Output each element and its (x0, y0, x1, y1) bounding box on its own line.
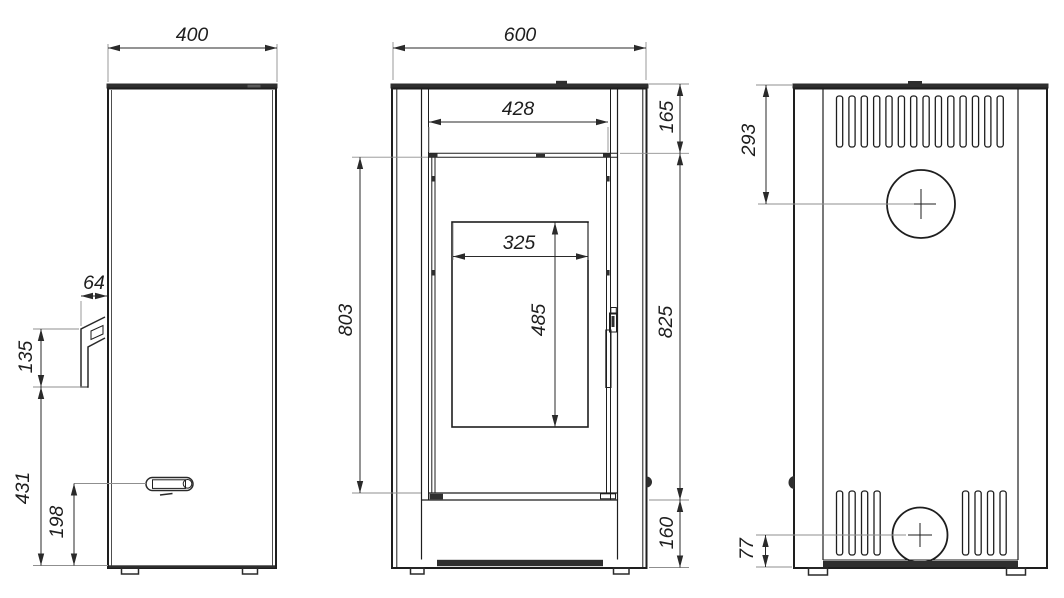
front-latch-mark (612, 316, 615, 327)
vent-slot (898, 96, 904, 147)
vent-slot (874, 96, 880, 147)
vent-slot (849, 96, 855, 147)
vent-slot (861, 96, 867, 147)
dimension-label: 825 (655, 306, 677, 339)
side-body-outline (108, 89, 276, 569)
front-hinge-bottom-left (431, 270, 435, 276)
back-bottom-shadow (823, 561, 1018, 567)
back-top-plate-nub (908, 81, 922, 84)
vent-slot (874, 491, 880, 555)
front-door-bottom-hinge (430, 494, 444, 500)
vent-slot (886, 96, 892, 147)
dimension-label: 803 (335, 304, 357, 337)
back-bottom-vent-grille (837, 491, 1007, 555)
front-dim-glass-width-325: 325 (453, 223, 588, 260)
vent-slot (972, 96, 978, 147)
back-body-outline (794, 89, 1047, 569)
front-latch-pin-bottom (606, 270, 610, 276)
front-top-plate-nub (556, 81, 567, 84)
side-handle-tick (160, 494, 173, 496)
side-dim-handle-198: 198 (46, 484, 146, 566)
vent-slot (960, 96, 966, 147)
side-top-plate-detail (248, 85, 261, 88)
back-top-vent-grille (837, 96, 1004, 147)
dimension-label: 325 (503, 232, 536, 254)
vent-slot (975, 491, 981, 555)
back-side-knob (789, 476, 795, 489)
front-side-knob (647, 477, 653, 488)
dimension-label: 485 (528, 304, 550, 337)
dimension-label: 293 (738, 124, 760, 158)
dimension-label: 165 (656, 101, 678, 134)
front-latch-pin-top (606, 176, 610, 182)
front-dim-door-height-803: 803 (335, 157, 428, 493)
vent-slot (985, 96, 991, 147)
dimension-label: 160 (656, 517, 678, 550)
back-view (789, 81, 1049, 575)
vent-slot (911, 96, 917, 147)
vent-slot (935, 96, 941, 147)
vent-slot (923, 96, 929, 147)
vent-slot (988, 491, 994, 555)
vent-slot (948, 96, 954, 147)
side-dim-width-400: 400 (108, 24, 277, 82)
side-handle-pivot (183, 480, 192, 489)
dimension-label: 431 (12, 472, 34, 505)
front-dim-right-chain: 165 825 160 (620, 84, 689, 568)
vent-slot (849, 491, 855, 555)
technical-drawing-page: 400 64 135 431 198 (0, 0, 1064, 598)
dimension-label: 600 (504, 24, 537, 46)
side-dim-duct-135: 135 (15, 329, 87, 387)
front-dim-width-600: 600 (393, 24, 646, 80)
front-recess-tick-center (536, 154, 545, 157)
back-dim-flue-293: 293 (738, 85, 914, 204)
side-rear-duct-slot (91, 326, 103, 340)
side-view (81, 84, 278, 575)
dimension-label: 64 (83, 272, 105, 294)
back-foot-right (1007, 568, 1026, 575)
dimension-label: 135 (15, 341, 37, 374)
vent-slot (963, 491, 969, 555)
vent-slot (1000, 491, 1006, 555)
front-recess-tick-right (603, 154, 611, 158)
stove-dimension-drawing: 400 64 135 431 198 (0, 0, 1064, 598)
front-recess-tick-left (429, 154, 438, 158)
dimension-label: 77 (736, 537, 758, 560)
dimension-label: 198 (46, 506, 68, 539)
vent-slot (837, 96, 843, 147)
vent-slot (862, 491, 868, 555)
vent-slot (997, 96, 1003, 147)
side-rear-duct-bracket (81, 317, 105, 387)
front-dim-door-428: 428 (429, 98, 608, 152)
front-base-shadow (437, 560, 603, 566)
dimension-label: 428 (502, 98, 535, 120)
front-hinge-top-left (431, 176, 435, 182)
back-foot-left (809, 568, 828, 575)
side-door-handle-inner (153, 480, 186, 489)
vent-slot (837, 491, 843, 555)
front-door-bottom-stop (601, 494, 616, 499)
dimension-label: 400 (176, 24, 209, 46)
front-view (391, 81, 653, 574)
